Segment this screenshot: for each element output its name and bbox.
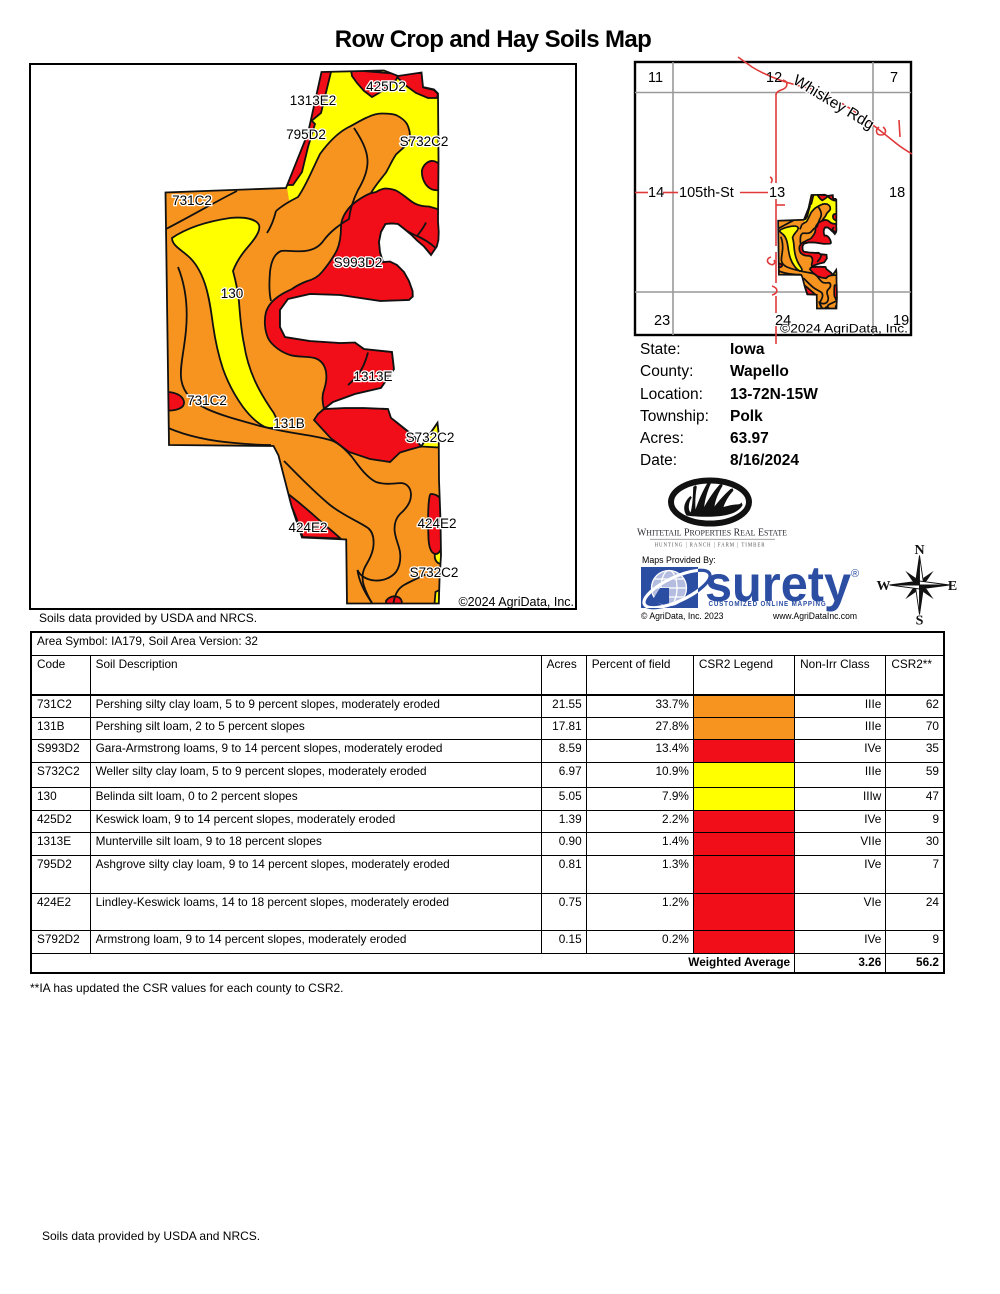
- svg-text:S: S: [916, 614, 924, 629]
- svg-text:795D2: 795D2: [286, 127, 326, 142]
- svg-text:S732C2: S732C2: [406, 430, 455, 445]
- svg-text:130: 130: [221, 286, 244, 301]
- svg-text:E: E: [948, 579, 957, 594]
- svg-text:S993D2: S993D2: [334, 255, 383, 270]
- svg-text:13: 13: [769, 185, 785, 201]
- svg-text:105th-St: 105th-St: [679, 185, 734, 201]
- svg-text:424E2: 424E2: [417, 516, 456, 531]
- svg-text:WHITETAIL PROPERTIES REAL ESTA: WHITETAIL PROPERTIES REAL ESTATE: [637, 527, 787, 539]
- svg-text:CUSTOMIZED ONLINE MAPPING: CUSTOMIZED ONLINE MAPPING: [709, 599, 827, 608]
- svg-text:© AgriData, Inc. 2023: © AgriData, Inc. 2023: [641, 611, 724, 621]
- svg-text:©2024 AgriData, Inc.: ©2024 AgriData, Inc.: [780, 322, 908, 336]
- svg-text:HUNTING | RANCH | FARM | TIMBE: HUNTING | RANCH | FARM | TIMBER: [655, 542, 766, 549]
- svg-text:18: 18: [889, 185, 905, 201]
- svg-text:©2024 AgriData, Inc.: ©2024 AgriData, Inc.: [458, 595, 574, 609]
- svg-text:1313E: 1313E: [353, 369, 392, 384]
- svg-text:®: ®: [851, 568, 859, 580]
- svg-text:424E2: 424E2: [288, 520, 327, 535]
- svg-text:S732C2: S732C2: [400, 134, 449, 149]
- svg-text:11: 11: [648, 70, 663, 86]
- svg-text:23: 23: [654, 313, 670, 329]
- svg-text:www.AgriDataInc.com: www.AgriDataInc.com: [772, 611, 857, 621]
- svg-text:7: 7: [890, 70, 898, 86]
- svg-text:W: W: [877, 579, 891, 594]
- svg-text:S732C2: S732C2: [410, 565, 459, 580]
- svg-text:425D2: 425D2: [366, 79, 406, 94]
- svg-text:1313E2: 1313E2: [290, 93, 337, 108]
- svg-text:731C2: 731C2: [187, 393, 227, 408]
- svg-text:12: 12: [766, 70, 782, 86]
- svg-text:14: 14: [648, 185, 664, 201]
- svg-text:N: N: [914, 543, 924, 558]
- svg-text:731C2: 731C2: [172, 193, 212, 208]
- svg-text:131B: 131B: [273, 416, 305, 431]
